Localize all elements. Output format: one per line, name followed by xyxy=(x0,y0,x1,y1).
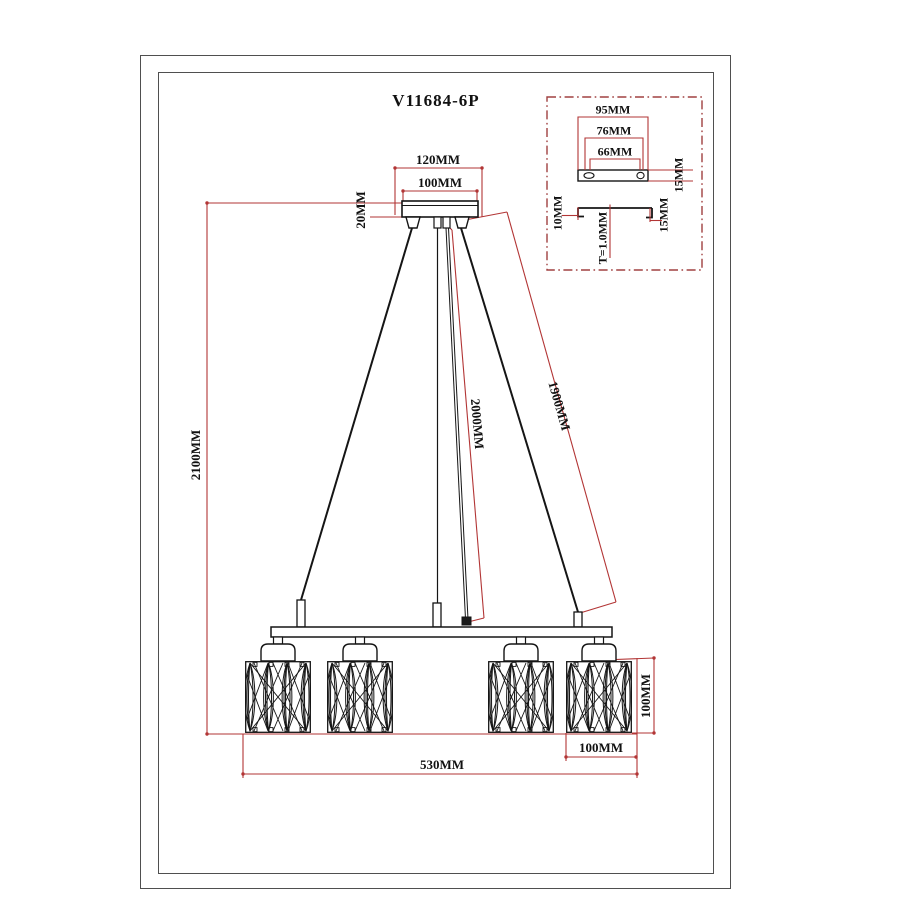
dim-hole-spacing-inner: 66MM xyxy=(598,145,633,160)
dim-overall-height: 2100MM xyxy=(188,430,204,481)
suspension-wires xyxy=(301,228,578,619)
dim-flange-right: 15MM xyxy=(657,198,672,233)
lamp-shade-4 xyxy=(566,662,632,733)
lamp-shade-3 xyxy=(488,662,554,733)
dim-ring-width: 530MM xyxy=(420,757,464,773)
ceiling-canopy-drawing xyxy=(402,201,478,228)
dim-canopy-height: 20MM xyxy=(353,191,369,229)
ring-frame-drawing xyxy=(261,600,616,661)
model-number: V11684-6P xyxy=(392,91,479,111)
dim-canopy-outer-width: 120MM xyxy=(416,152,460,168)
dim-plate-thickness: T=1.0MM xyxy=(596,212,611,265)
dim-canopy-inner-width: 100MM xyxy=(418,175,462,191)
lamp-shade-2 xyxy=(327,662,393,733)
dim-shade-height: 100MM xyxy=(638,674,654,718)
dim-flange-left: 10MM xyxy=(551,196,566,231)
dim-plate-height: 15MM xyxy=(672,158,687,193)
dim-plate-width: 95MM xyxy=(596,103,631,118)
technical-drawing-page: V11684-6P 120MM 100MM 20MM 2100MM 2000MM… xyxy=(0,0,900,900)
dim-hole-spacing-outer: 76MM xyxy=(597,124,632,139)
dim-shade-width: 100MM xyxy=(579,740,623,756)
lamp-shade-1 xyxy=(245,662,311,733)
